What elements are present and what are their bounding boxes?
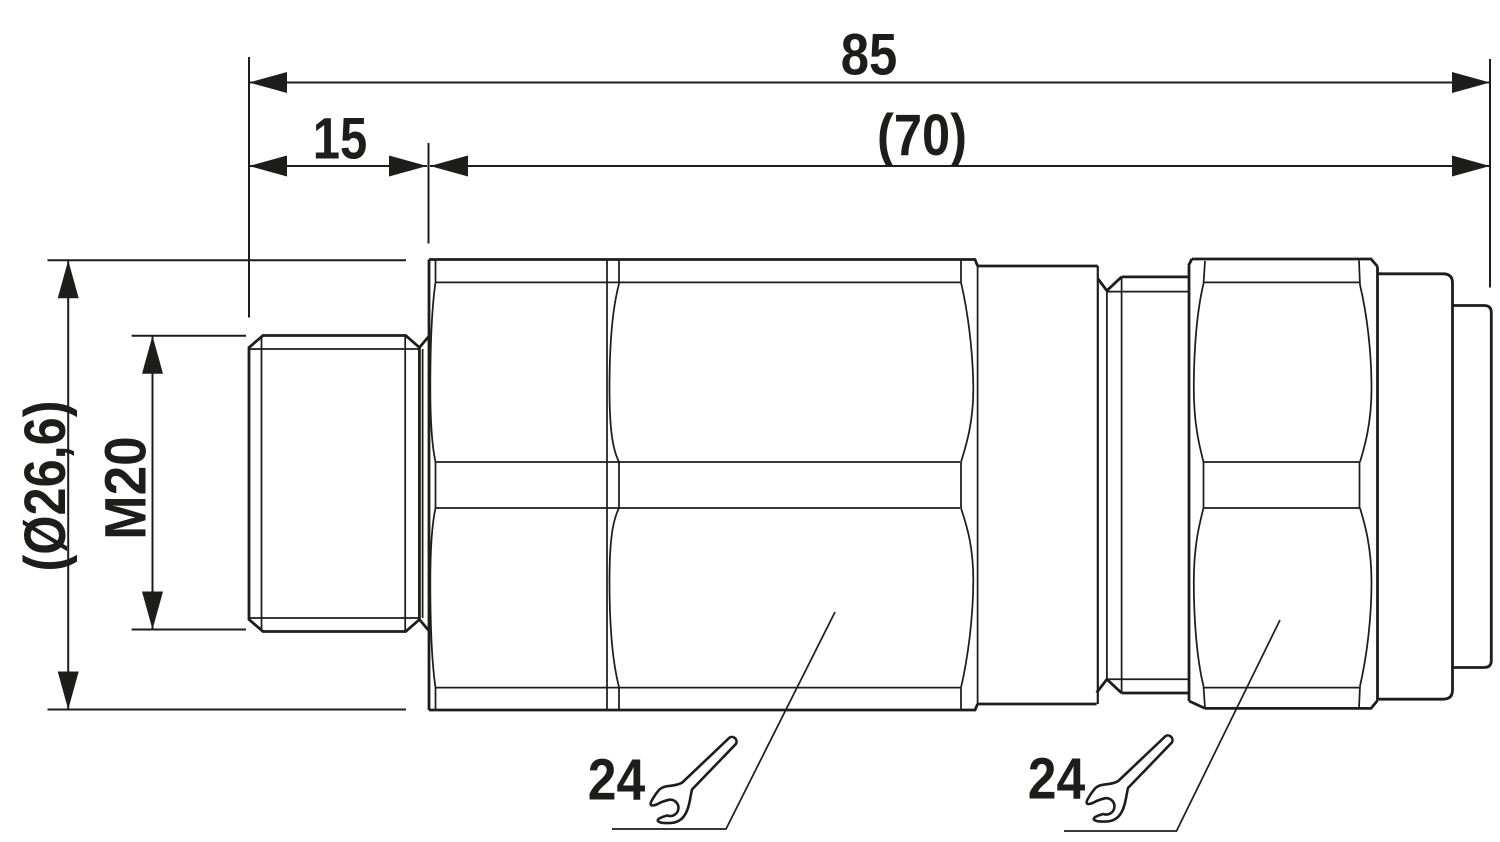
svg-text:85: 85 — [841, 23, 898, 88]
svg-text:15: 15 — [313, 107, 368, 172]
svg-text:(Ø26,6): (Ø26,6) — [13, 401, 78, 572]
svg-text:24: 24 — [588, 748, 646, 813]
svg-text:M20: M20 — [94, 436, 159, 540]
svg-text:24: 24 — [1028, 747, 1086, 812]
svg-text:(70): (70) — [877, 103, 967, 168]
